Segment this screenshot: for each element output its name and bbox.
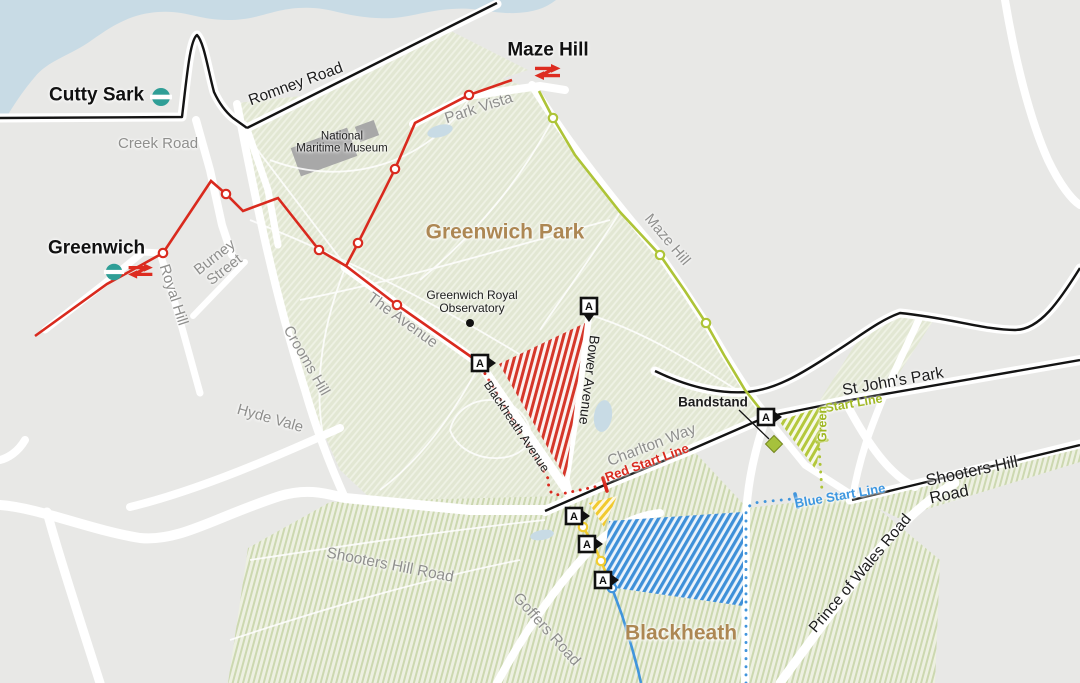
national-rail-icon	[535, 64, 561, 80]
svg-text:A: A	[476, 358, 484, 370]
station-label-greenwich: Greenwich	[48, 239, 145, 260]
area-label-blackheath: Blackheath	[625, 623, 737, 646]
svg-text:A: A	[583, 539, 591, 551]
svg-text:A: A	[570, 511, 578, 523]
station-label-cutty-sark: Cutty Sark	[49, 86, 144, 107]
poi-label-royal-observatory: Greenwich Royal Observatory	[426, 289, 517, 315]
svg-text:A: A	[762, 412, 770, 424]
dlr-roundel-icon	[150, 88, 172, 106]
marathon-start-map: A A A A A A Cutty Sark Creek Road Romney…	[0, 0, 1080, 683]
area-label-greenwich-park: Greenwich Park	[426, 222, 585, 245]
road-label-creek-road: Creek Road	[118, 136, 198, 152]
poi-label-national-maritime-museum: National Maritime Museum	[296, 131, 387, 156]
svg-text:A: A	[599, 575, 607, 587]
green-start-line-word: Green	[816, 406, 830, 442]
svg-text:A: A	[585, 301, 593, 313]
map-canvas: A A A A A A	[0, 0, 1080, 683]
observatory-dot	[466, 319, 474, 327]
poi-label-bandstand: Bandstand	[678, 396, 748, 411]
station-label-maze-hill: Maze Hill	[507, 41, 588, 62]
